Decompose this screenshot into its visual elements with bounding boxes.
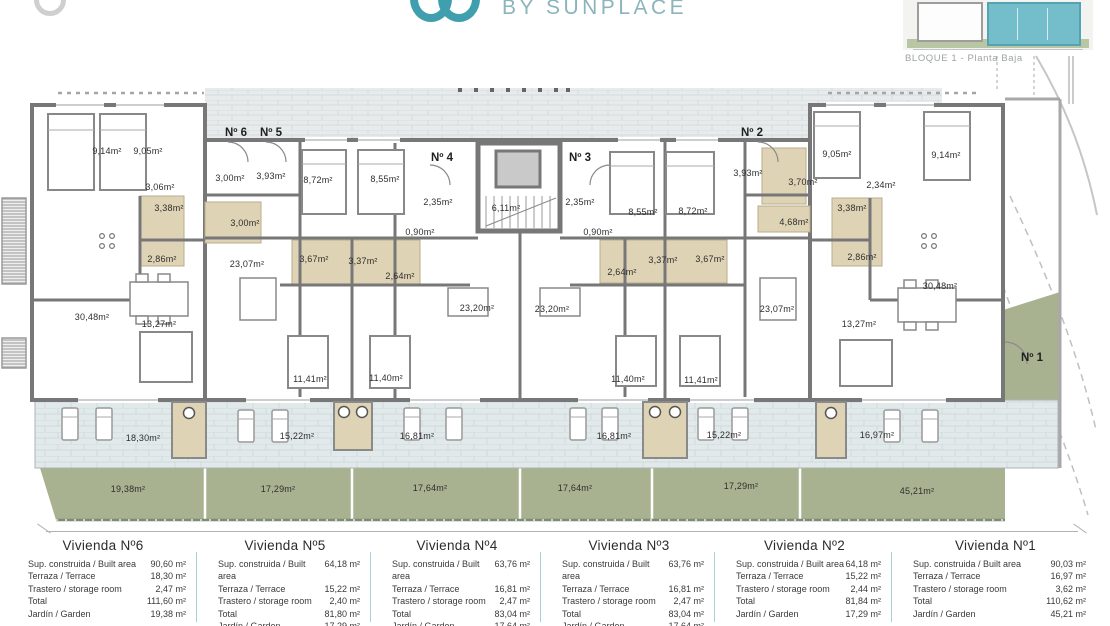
spec-row: Trastero / storage room2,47 m² (542, 595, 716, 607)
spec-value: 81,84 m² (845, 595, 881, 607)
spec-label: Sup. construida / Built area (392, 558, 494, 583)
spec-label: Trastero / storage room (28, 583, 122, 595)
spec-row: Terraza / Terrace16,97 m² (893, 570, 1098, 582)
unit-title: Vivienda Nº1 (893, 538, 1098, 553)
spec-row: Trastero / storage room3,62 m² (893, 583, 1098, 595)
spec-row: Total81,80 m² (198, 608, 372, 620)
spec-label: Jardín / Garden (28, 608, 91, 620)
spec-label: Total (736, 595, 755, 607)
spec-value: 63,76 m² (668, 558, 704, 583)
spec-row: Total83,04 m² (372, 608, 542, 620)
unit-summary-column: Vivienda Nº6Sup. construida / Built area… (8, 536, 198, 620)
spec-value: 2,44 m² (850, 583, 881, 595)
spec-label: Sup. construida / Built area (562, 558, 668, 583)
column-separator (714, 552, 715, 622)
spec-row: Jardín / Garden17,29 m² (198, 620, 372, 626)
spec-row: Trastero / storage room2,47 m² (372, 595, 542, 607)
spec-label: Sup. construida / Built area (218, 558, 324, 583)
spec-value: 64,18 m² (324, 558, 360, 583)
spec-value: 90,03 m² (1050, 558, 1086, 570)
unit-summary-column: Vivienda Nº2Sup. construida / Built area… (716, 536, 893, 620)
spec-value: 90,60 m² (150, 558, 186, 570)
spec-value: 110,62 m² (1046, 595, 1086, 607)
spec-value: 45,21 m² (1050, 608, 1086, 620)
spec-label: Total (218, 608, 237, 620)
spec-label: Jardín / Garden (218, 620, 281, 626)
spec-value: 83,04 m² (494, 608, 530, 620)
table-top-rule (46, 531, 1078, 532)
spec-value: 15,22 m² (845, 570, 881, 582)
thumbnail-block-2 (917, 2, 983, 42)
column-separator (891, 552, 892, 622)
column-separator (540, 552, 541, 622)
spec-label: Terraza / Terrace (562, 583, 629, 595)
spec-row: Total110,62 m² (893, 595, 1098, 607)
spec-value: 15,22 m² (324, 583, 360, 595)
spec-label: Terraza / Terrace (736, 570, 803, 582)
spec-label: Trastero / storage room (218, 595, 312, 607)
spec-row: Terraza / Terrace15,22 m² (198, 583, 372, 595)
spec-value: 16,81 m² (494, 583, 530, 595)
column-separator (196, 552, 197, 622)
spec-value: 17,64 m² (668, 620, 704, 626)
spec-value: 18,30 m² (150, 570, 186, 582)
thumbnail-caption: BLOQUE 1 - Planta Baja (905, 53, 1023, 64)
unit-title: Vivienda Nº5 (198, 538, 372, 553)
spec-label: Total (28, 595, 47, 607)
spec-row: Terraza / Terrace16,81 m² (372, 583, 542, 595)
floor-plan (0, 0, 1110, 626)
spec-label: Sup. construida / Built area (913, 558, 1021, 570)
spec-value: 83,04 m² (668, 608, 704, 620)
spec-label: Total (392, 608, 411, 620)
spec-value: 16,97 m² (1050, 570, 1086, 582)
unit-title: Vivienda Nº6 (8, 538, 198, 553)
spec-row: Total83,04 m² (542, 608, 716, 620)
spec-value: 111,60 m² (147, 595, 186, 607)
spec-value: 64,18 m² (845, 558, 881, 570)
siteplan-thumbnail (903, 0, 1093, 50)
spec-label: Terraza / Terrace (28, 570, 95, 582)
elevator (496, 151, 540, 187)
unit-title: Vivienda Nº3 (542, 538, 716, 553)
spec-value: 2,47 m² (499, 595, 530, 607)
brand-text: BY SUNPLACE (502, 0, 687, 20)
summary-table: Vivienda Nº6Sup. construida / Built area… (0, 536, 1110, 626)
spec-label: Terraza / Terrace (218, 583, 285, 595)
spec-label: Terraza / Terrace (392, 583, 459, 595)
spec-label: Jardín / Garden (392, 620, 455, 626)
spec-value: 17,29 m² (324, 620, 360, 626)
spec-row: Trastero / storage room2,47 m² (8, 583, 198, 595)
unit-summary-column: Vivienda Nº5Sup. construida / Built area… (198, 536, 372, 626)
spec-row: Terraza / Terrace18,30 m² (8, 570, 198, 582)
spec-label: Jardín / Garden (736, 608, 799, 620)
spec-value: 81,80 m² (324, 608, 360, 620)
unit-summary-column: Vivienda Nº4Sup. construida / Built area… (372, 536, 542, 626)
spec-row: Terraza / Terrace16,81 m² (542, 583, 716, 595)
spec-label: Jardín / Garden (562, 620, 625, 626)
spec-label: Sup. construida / Built area (28, 558, 136, 570)
unit-summary-column: Vivienda Nº3Sup. construida / Built area… (542, 536, 716, 626)
spec-value: 17,29 m² (845, 608, 881, 620)
spec-label: Sup. construida / Built area (736, 558, 844, 570)
spec-row: Jardín / Garden45,21 m² (893, 608, 1098, 620)
spec-value: 63,76 m² (494, 558, 530, 583)
spec-label: Total (562, 608, 581, 620)
spec-row: Jardín / Garden17,64 m² (372, 620, 542, 626)
floorplan-sheet: 9,14m²9,05m²3,06m²3,00m²3,93m²3,38m²3,00… (0, 0, 1110, 626)
spec-row: Trastero / storage room2,44 m² (716, 583, 893, 595)
unit-title: Vivienda Nº2 (716, 538, 893, 553)
spec-label: Total (913, 595, 932, 607)
spec-label: Trastero / storage room (392, 595, 486, 607)
spec-label: Trastero / storage room (562, 595, 656, 607)
unit-title: Vivienda Nº4 (372, 538, 542, 553)
left-pergola (2, 198, 26, 368)
spec-label: Jardín / Garden (913, 608, 976, 620)
spec-row: Trastero / storage room2,40 m² (198, 595, 372, 607)
spec-row: Sup. construida / Built area90,03 m² (893, 558, 1098, 570)
thumbnail-block-1-highlighted (987, 2, 1081, 46)
spec-value: 2,47 m² (155, 583, 186, 595)
spec-row: Sup. construida / Built area90,60 m² (8, 558, 198, 570)
spec-row: Jardín / Garden17,64 m² (542, 620, 716, 626)
spec-row: Sup. construida / Built area63,76 m² (542, 558, 716, 583)
stair-core (478, 143, 560, 231)
spec-value: 17,64 m² (494, 620, 530, 626)
spec-row: Sup. construida / Built area64,18 m² (198, 558, 372, 583)
spec-value: 19,38 m² (150, 608, 186, 620)
spec-row: Sup. construida / Built area63,76 m² (372, 558, 542, 583)
spec-value: 16,81 m² (668, 583, 704, 595)
spec-row: Total111,60 m² (8, 595, 198, 607)
spec-row: Sup. construida / Built area64,18 m² (716, 558, 893, 570)
spec-row: Jardín / Garden19,38 m² (8, 608, 198, 620)
spec-value: 2,40 m² (329, 595, 360, 607)
thumbnail-dimension-line (913, 49, 1083, 50)
column-separator (370, 552, 371, 622)
spec-label: Terraza / Terrace (913, 570, 980, 582)
spec-value: 2,47 m² (673, 595, 704, 607)
spec-row: Terraza / Terrace15,22 m² (716, 570, 893, 582)
spec-label: Trastero / storage room (736, 583, 830, 595)
unit-summary-column: Vivienda Nº1Sup. construida / Built area… (893, 536, 1098, 620)
spec-value: 3,62 m² (1055, 583, 1086, 595)
spec-row: Jardín / Garden17,29 m² (716, 608, 893, 620)
spec-label: Trastero / storage room (913, 583, 1007, 595)
spec-row: Total81,84 m² (716, 595, 893, 607)
